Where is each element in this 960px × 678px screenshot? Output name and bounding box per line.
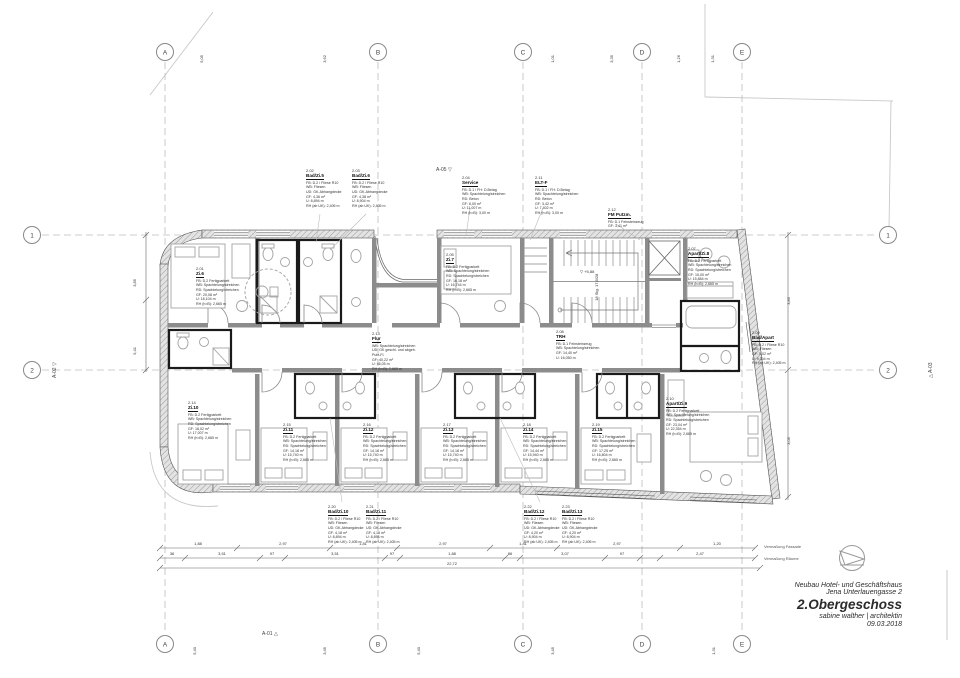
room-name: Zi.7 — [446, 257, 454, 264]
section-marker-a05: A-05 ▽ — [436, 167, 452, 173]
room-props: FB: D.2 Fertigparkett WB: Spachtelung/st… — [196, 279, 242, 307]
dim-value: 1,88 — [194, 541, 202, 546]
room-label-zi7: 2.05Zi.7FB: D.2 Fertigparkett WB: Spacht… — [446, 252, 492, 293]
room-props: FB: D.2 / Fliese R10 WB: Fliesen UD: GK-… — [306, 181, 352, 209]
room-name: Flur — [372, 336, 381, 343]
axis-dim: 3,35 — [610, 55, 615, 63]
room-name: ELT-F — [535, 180, 547, 187]
room-label-bad-apart: 2.09Bad/ApartFB: D.2 / Fliese R10 WB: Fl… — [752, 330, 798, 366]
dim-value: 3,51 — [218, 551, 226, 556]
dim-value: 2,47 — [696, 551, 704, 556]
sink-icon — [319, 402, 327, 410]
room-name: Zi.10 — [188, 405, 198, 412]
room-label-zi14: 2.18Zi.14FB: D.2 Fertigparkett WB: Spach… — [523, 422, 569, 463]
section-marker-a03: △ A-03 — [928, 362, 934, 378]
room-label-bad-zi6: 2.03Bad/Zi.6FB: D.2 / Fliese R10 WB: Fli… — [352, 168, 398, 209]
axis-dim: 3,05 — [787, 437, 792, 445]
axis-label: E — [740, 50, 745, 57]
dim-value: 2,97 — [439, 541, 447, 546]
toilet-icon — [642, 382, 651, 394]
room-name: Zi.11 — [283, 427, 293, 434]
axis-label: A — [163, 50, 168, 57]
room-props: FB: D.2 Fertigparkett WB: Spachtelung/st… — [446, 265, 492, 293]
axis-dim: 5,40 — [417, 647, 422, 655]
axis-label: B — [376, 50, 380, 57]
axis-dim: 3,45 — [323, 647, 328, 655]
section-marker-a01: A-01 △ — [262, 631, 278, 637]
bathtub-icon — [686, 306, 736, 328]
dim-value: 1,88 — [448, 551, 456, 556]
sink-icon — [200, 338, 209, 347]
dim-value: 1,81 — [519, 541, 527, 546]
shower-icon — [213, 348, 229, 365]
room-label-zi11: 2.15Zi.11FB: D.2 Fertigparkett WB: Spach… — [283, 422, 329, 463]
room-name: Zi.15 — [592, 427, 602, 434]
room-name: Bad/Zi.5 — [306, 173, 324, 180]
elevator-icon — [649, 241, 680, 275]
room-name: Apart/Zi.9 — [666, 401, 687, 408]
axis-dim: 1,26 — [677, 55, 682, 63]
room-label-flur: 2.13FlurWB: Spachtelung/streichen UD: GK… — [372, 331, 418, 372]
room-name: Service — [462, 180, 478, 187]
axis-dim: 5,05 — [200, 55, 205, 63]
toilet-icon — [356, 382, 365, 394]
toilet-icon — [306, 382, 315, 394]
dim-value: 1,81 — [359, 541, 367, 546]
sheet-date: 09.03.2018 — [662, 621, 902, 628]
project-address: Jena Unterlauengasse 2 — [662, 589, 902, 596]
dim-value: 2,97 — [613, 541, 621, 546]
toilet-icon — [177, 333, 189, 349]
toilet-icon — [262, 244, 274, 261]
room-label-zi13: 2.17Zi.13FB: D.2 Fertigparkett WB: Spach… — [443, 422, 489, 463]
axis-label: C — [521, 642, 526, 649]
room-name: Bad/Apart — [752, 335, 774, 342]
axis-label: D — [640, 642, 645, 649]
chair-icon — [701, 471, 712, 482]
axis-dim: 3,62 — [323, 55, 328, 63]
floor-plan-sheet: A B C D E A B C D E 1 2 1 2 — [0, 0, 960, 678]
dim-value: 2,97 — [279, 541, 287, 546]
sink-icon — [304, 258, 313, 267]
recess-glazing — [375, 236, 437, 282]
room-props: FB: D.2 Fertigparkett WB: Spachtelung/st… — [283, 435, 329, 463]
room-label-apart-zi8: 2.07Apart/Zi.8FB: D.2 Fertigparkett WB: … — [688, 246, 734, 287]
axis-label: D — [640, 50, 645, 57]
room-label-apart-zi9: 2.10Apart/Zi.9FB: D.2 Fertigparkett WB: … — [666, 396, 712, 437]
architect-name: sabine walther | architektin — [662, 613, 902, 620]
dim-value: 97 — [390, 551, 394, 556]
dim-total: 22,72 — [447, 561, 457, 566]
room-props: FB: D.1 / FH: D.Belag WB: Spachtelung/st… — [462, 188, 508, 216]
room-props: FB: D.2 / Fliese R10 WB: Fliesen GF: 5,0… — [752, 343, 798, 366]
room-props: FB: D.2 Fertigparkett WB: Spachtelung/st… — [688, 259, 734, 287]
dim-value: 97 — [270, 551, 274, 556]
sink-icon — [352, 298, 361, 307]
plan-drawing: A B C D E A B C D E 1 2 1 2 — [0, 0, 960, 678]
room-label-elt: 2.11ELT-FFB: D.1 / FH: D.Belag WB: Spach… — [535, 175, 581, 216]
title-block: Neubau Hotel- und Geschäftshaus Jena Unt… — [662, 582, 902, 628]
sheet-title: 2.Obergeschoss — [662, 597, 902, 612]
section-marker-a02: A-02 ▽ — [52, 362, 58, 378]
sink-icon — [614, 402, 622, 410]
axis-dim: 3,85 — [787, 297, 792, 305]
room-props: FB: D.1 Feinsteinzeug GF: 3,41 m² — [608, 220, 654, 229]
stair-note: 18 Stg. 17,6/28 — [595, 274, 600, 301]
room-props: FB: D.2 Fertigparkett WB: Spachtelung/st… — [523, 435, 569, 463]
level-marker: ▽ +5,88 — [580, 270, 594, 275]
axis-dim: 3,45 — [551, 647, 556, 655]
sink-icon — [503, 402, 511, 410]
axis-label: B — [376, 642, 380, 649]
shelf-icon — [524, 248, 547, 272]
chair-icon — [495, 301, 506, 312]
dim-value: 1,20 — [713, 541, 721, 546]
axis-label: C — [521, 50, 526, 57]
axis-dim: 1,31 — [711, 55, 716, 63]
desk-icon — [637, 434, 651, 462]
chair-icon — [721, 475, 732, 486]
axis-label: A — [163, 642, 168, 649]
axis-dim: 3,85 — [133, 279, 138, 287]
axis-label: 2 — [30, 368, 34, 375]
room-name: Bad/Zi.11 — [366, 509, 386, 516]
room-label-bad-zi5: 2.02Bad/Zi.5FB: D.2 / Fliese R10 WB: Fli… — [306, 168, 352, 209]
room-name: Zi.13 — [443, 427, 453, 434]
sink-icon — [634, 402, 642, 410]
dim-value: 86 — [508, 551, 512, 556]
room-props: FB: D.2 Fertigparkett WB: Spachtelung/st… — [592, 435, 638, 463]
room-props: FB: D.2 / Fliese R10 WB: Fliesen UD: GK-… — [366, 517, 412, 545]
sink-icon — [281, 258, 290, 267]
axis-label: 1 — [30, 233, 34, 240]
axis-dim: 1,01 — [551, 55, 556, 63]
room-label-bad-zi11: 2.21Bad/Zi.11FB: D.2 / Fliese R10 WB: Fl… — [366, 504, 412, 545]
room-name: Bad/Zi.13 — [562, 509, 582, 516]
room-name: FM Putzm. — [608, 212, 631, 219]
axis-label: 1 — [886, 233, 890, 240]
toilet-icon — [322, 244, 334, 261]
room-name: Apart/Zi.8 — [688, 251, 709, 258]
room-name: Bad/Zi.10 — [328, 509, 348, 516]
room-props: FB: D.2 / Fliese R10 WB: Fliesen UD: GK-… — [562, 517, 608, 545]
room-name: Bad/Zi.6 — [352, 173, 370, 180]
toilet-icon — [464, 382, 473, 394]
room-label-trh: 2.08TRHFB: D.1 Feinsteinzeug WB: Spachte… — [556, 329, 602, 360]
sink-icon — [343, 402, 351, 410]
axis-dim: 5,40 — [193, 647, 198, 655]
room-label-zi15: 2.19Zi.15FB: D.2 Fertigparkett WB: Spach… — [592, 422, 638, 463]
shower-icon — [260, 296, 277, 313]
dim-value: 97 — [620, 551, 624, 556]
room-name: Zi.14 — [523, 427, 533, 434]
toilet-icon — [516, 382, 525, 394]
room-name: Zi.12 — [363, 427, 373, 434]
dim-value: 3,51 — [331, 551, 339, 556]
room-name: Zi.6 — [196, 271, 204, 278]
room-props: WB: Spachtelung/streichen UD: GK geschl.… — [372, 344, 418, 372]
toilet-icon — [606, 382, 615, 394]
project-title: Neubau Hotel- und Geschäftshaus — [662, 582, 902, 589]
room-props: FB: D.2 Fertigparkett WB: Spachtelung/st… — [443, 435, 489, 463]
room-props: FB: D.2 Fertigparkett WB: Spachtelung/st… — [188, 413, 234, 441]
room-label-fm: 2.12FM Putzm.FB: D.1 Feinsteinzeug GF: 3… — [608, 207, 654, 229]
toilet-icon — [351, 250, 361, 263]
room-name: Bad/Zi.12 — [524, 509, 544, 516]
room-label-zi10: 2.14Zi.10FB: D.2 Fertigparkett WB: Spach… — [188, 400, 234, 441]
room-label-zi6: 2.01Zi.6FB: D.2 Fertigparkett WB: Spacht… — [196, 266, 242, 307]
axis-label: 2 — [886, 368, 890, 375]
toilet-icon — [721, 351, 731, 364]
room-props: FB: D.1 Feinsteinzeug WB: Spachtelung/st… — [556, 342, 602, 361]
dim-row-label-fassade: Vermaßung Fassade — [764, 544, 801, 549]
sink-icon — [700, 354, 709, 363]
room-label-bad-zi13: 2.23Bad/Zi.13FB: D.2 / Fliese R10 WB: Fl… — [562, 504, 608, 545]
room-props: FB: D.1 / FH: D.Belag WB: Spachtelung/st… — [535, 188, 581, 216]
dim-value: 3,07 — [561, 551, 569, 556]
room-props: FB: D.2 / Fliese R10 WB: Fliesen UD: GK-… — [352, 181, 398, 209]
shower-icon — [320, 296, 337, 313]
axis-label: E — [740, 642, 745, 649]
sink-icon — [477, 402, 485, 410]
axis-dim: 1,31 — [712, 647, 717, 655]
north-arrow-icon — [840, 546, 865, 571]
room-label-zi12: 2.16Zi.12FB: D.2 Fertigparkett WB: Spach… — [363, 422, 409, 463]
room-label-service: 2.04ServiceFB: D.1 / FH: D.Belag WB: Spa… — [462, 175, 508, 216]
room-name: TRH — [556, 334, 565, 341]
axis-dim: 5,41 — [133, 347, 138, 355]
dim-row-label-raeume: Vermaßung Räume — [764, 556, 799, 561]
room-props: FB: D.2 Fertigparkett WB: Spachtelung/st… — [666, 409, 712, 437]
dim-value: 36 — [170, 551, 174, 556]
room-props: FB: D.2 Fertigparkett WB: Spachtelung/st… — [363, 435, 409, 463]
desk-icon — [236, 430, 250, 460]
